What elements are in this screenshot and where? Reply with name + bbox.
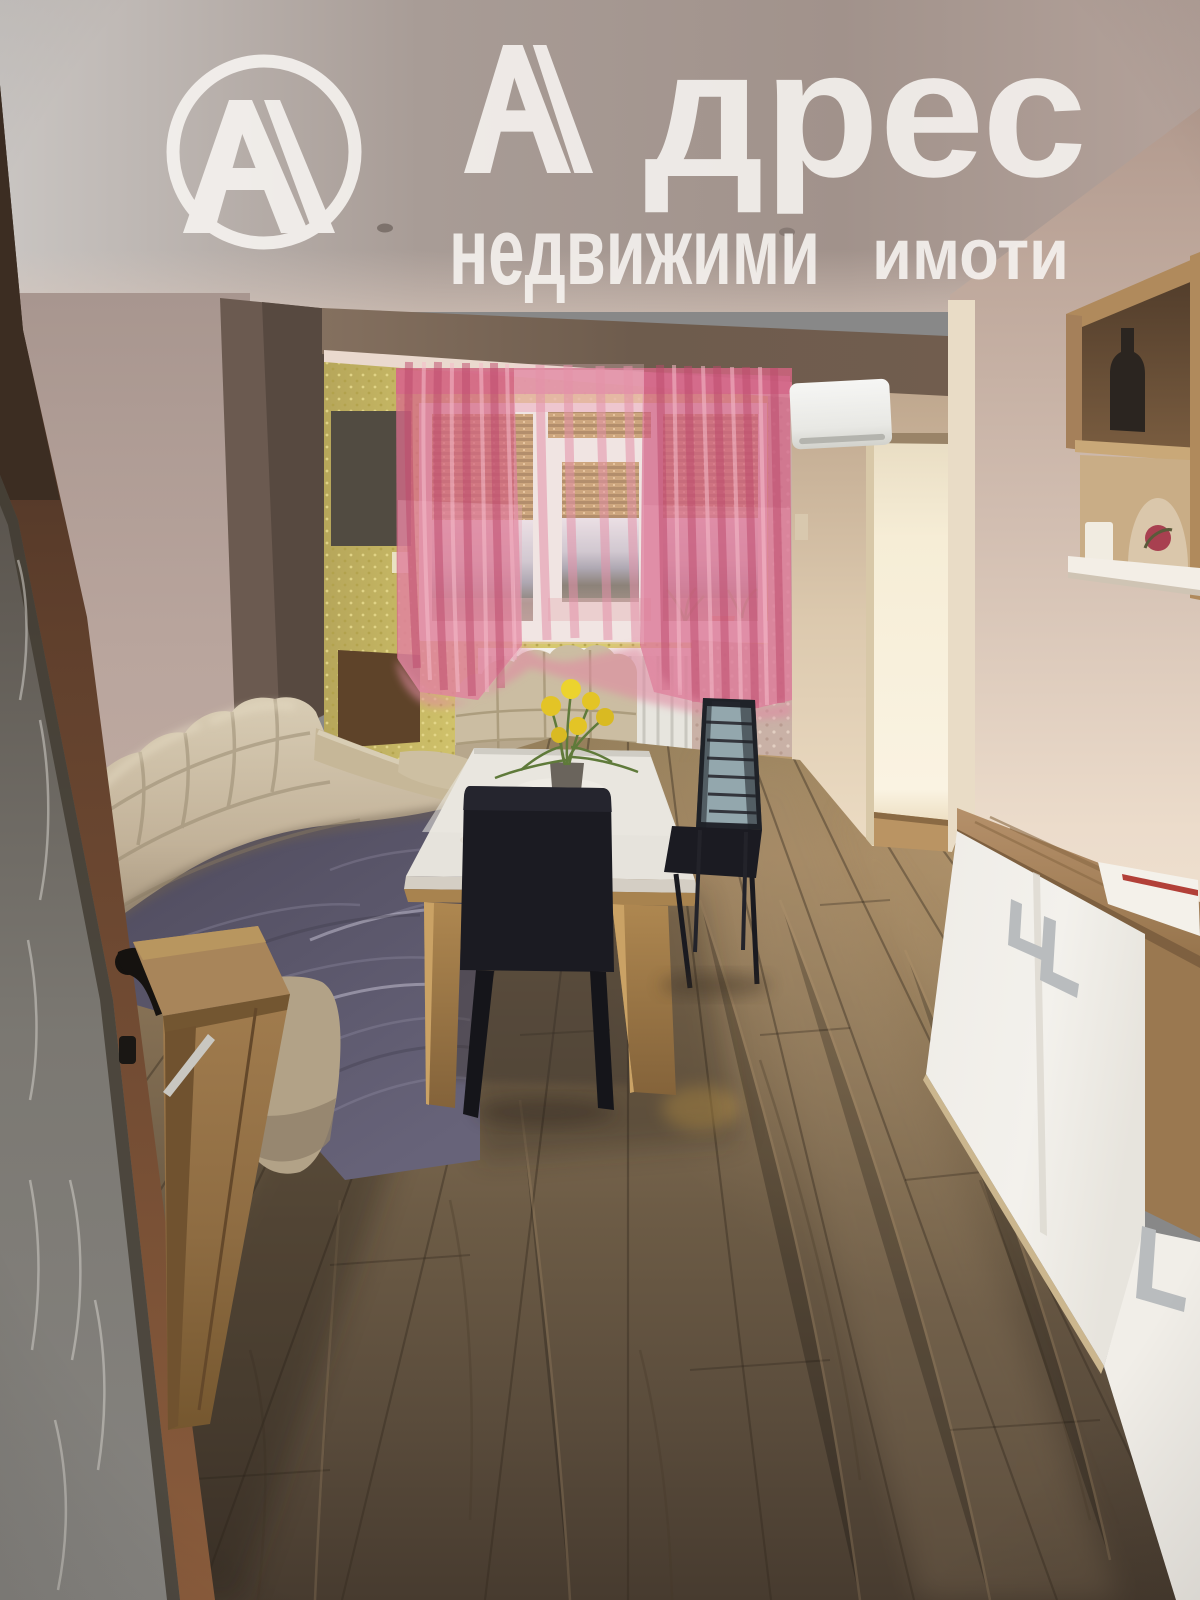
svg-text:имоти: имоти <box>872 215 1069 295</box>
svg-text:дрес: дрес <box>644 11 1087 215</box>
svg-text:недвижими: недвижими <box>449 198 820 305</box>
